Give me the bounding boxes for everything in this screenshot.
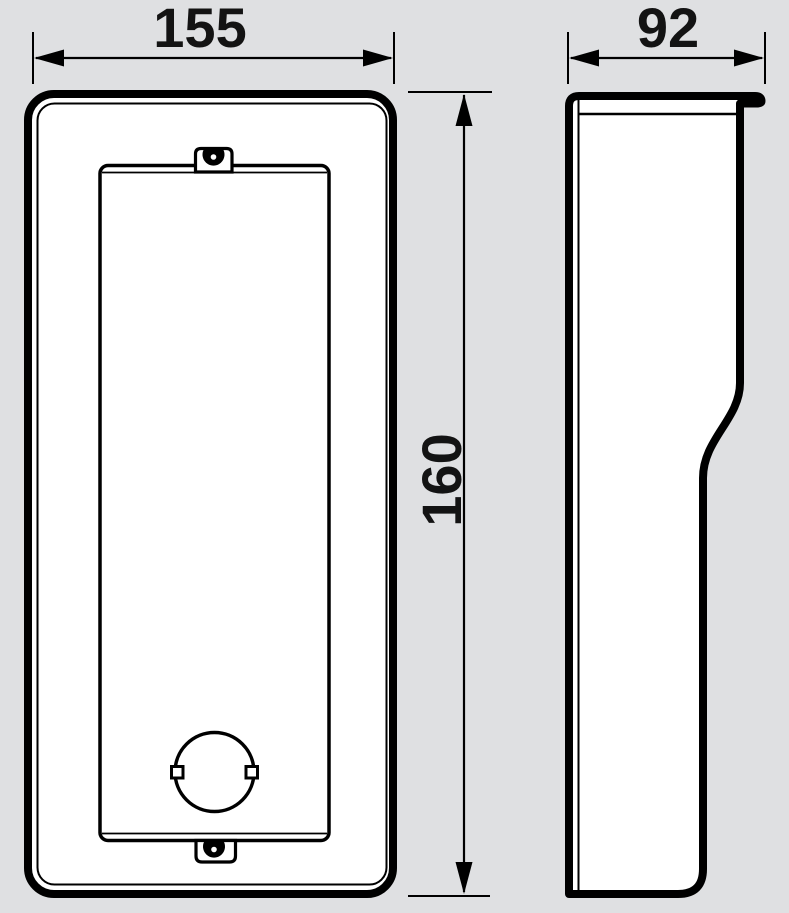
knockout-tab-left [172, 767, 184, 779]
height-dimension-label: 160 [410, 433, 473, 526]
drawing-canvas: 155 92 160 [0, 0, 789, 913]
front-view [28, 94, 393, 894]
width-dimension-label: 155 [153, 0, 246, 59]
cable-knockout-circle [175, 733, 254, 812]
screw-hole-bottom [211, 847, 217, 853]
knockout-tab-right [246, 767, 258, 779]
technical-drawing: 155 92 160 [0, 0, 789, 913]
depth-dimension-label: 92 [637, 0, 699, 59]
screw-hole-top [211, 154, 217, 160]
